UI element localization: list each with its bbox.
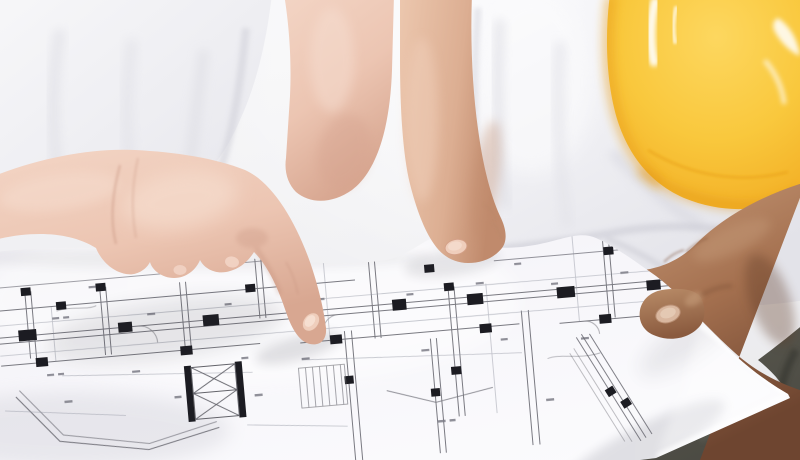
photo-construction-blueprint: Two people reviewing an architectural fl… <box>0 0 800 460</box>
photo-canvas: Two people reviewing an architectural fl… <box>0 0 800 460</box>
helmet-gloss-highlight <box>651 2 655 62</box>
ring-finger-nail <box>174 265 187 275</box>
